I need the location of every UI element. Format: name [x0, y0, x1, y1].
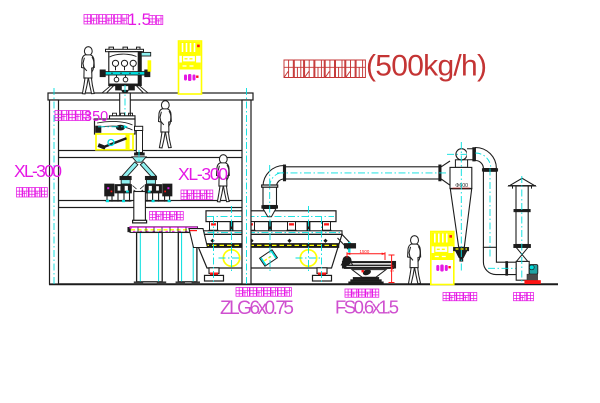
svg-text:350: 350 [84, 109, 108, 125]
svg-text:XL-300: XL-300 [14, 161, 62, 181]
svg-text:1500: 1500 [360, 249, 370, 254]
svg-text:(500kg/h): (500kg/h) [366, 50, 487, 83]
svg-text:FS0.6x1.5: FS0.6x1.5 [335, 297, 399, 318]
svg-text:545: 545 [389, 264, 394, 272]
svg-text:1.5: 1.5 [128, 10, 152, 29]
svg-text:ZLG6x0.75: ZLG6x0.75 [220, 298, 294, 319]
svg-text:XL-300: XL-300 [178, 164, 228, 184]
